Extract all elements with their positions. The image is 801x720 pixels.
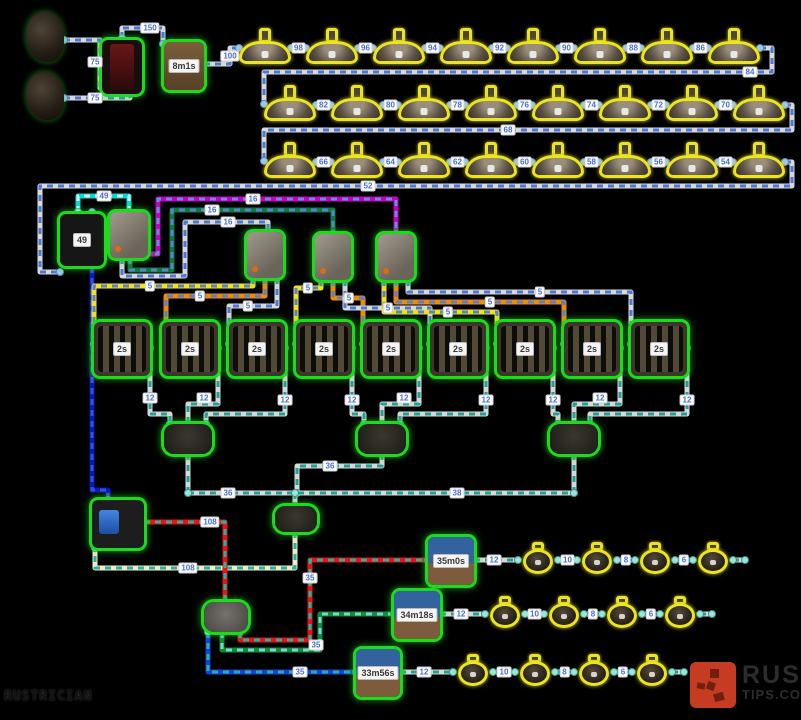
ceiling-light[interactable] (465, 85, 517, 121)
wire-dashes (297, 454, 382, 493)
wire-connector (292, 490, 299, 497)
rusttips-logo-text: RUST TIPS.COM (742, 662, 801, 701)
device-2s-7[interactable]: 2s (497, 322, 553, 376)
ceiling-light[interactable] (264, 85, 316, 121)
logo-subtitle: TIPS.COM (742, 688, 801, 701)
wire-connector (709, 611, 716, 618)
test-generator-1[interactable] (26, 12, 64, 62)
ceiling-light[interactable] (373, 28, 425, 64)
wire-connector (571, 490, 578, 497)
wire-generator-1-to-battery[interactable] (64, 40, 104, 88)
device-2s-2[interactable]: 2s (162, 322, 218, 376)
splitter-d[interactable] (378, 234, 414, 280)
light-dome (574, 41, 626, 64)
ceiling-light[interactable] (306, 28, 358, 64)
siren-light[interactable] (665, 596, 695, 628)
wire-connector (639, 611, 646, 618)
wire-connector (581, 611, 588, 618)
light-ball (579, 661, 609, 686)
light-ball (698, 549, 728, 574)
splitter-e[interactable] (204, 602, 248, 632)
component-label: 2s (113, 342, 131, 356)
ceiling-light[interactable] (574, 28, 626, 64)
light-dome (373, 41, 425, 64)
component-label: 35m0s (433, 554, 469, 568)
root-combiner-3[interactable] (550, 424, 598, 454)
wire-connector (185, 490, 192, 497)
light-dome (666, 155, 718, 178)
rusttips-logo-icon (690, 662, 736, 708)
smart-switch[interactable] (92, 500, 144, 548)
wire-connector (490, 669, 497, 676)
wire-connector (730, 557, 737, 564)
root-combiner-1[interactable] (164, 424, 212, 454)
wire-dashes (144, 522, 225, 602)
light-dome (708, 41, 760, 64)
light-dome (331, 155, 383, 178)
large-battery[interactable] (102, 40, 142, 94)
light-ball (637, 661, 667, 686)
light-dome (532, 155, 584, 178)
wire-connector (571, 669, 578, 676)
wire-connector (629, 669, 636, 676)
siren-light[interactable] (490, 596, 520, 628)
siren-light[interactable] (582, 542, 612, 574)
wire-connector (57, 269, 64, 276)
ceiling-light[interactable] (398, 85, 450, 121)
ceiling-light[interactable] (733, 85, 785, 121)
siren-light[interactable] (607, 596, 637, 628)
wire-battery-49-to-splitter-a[interactable] (78, 196, 129, 212)
wire-connector (690, 557, 697, 564)
ceiling-light[interactable] (507, 28, 559, 64)
light-ball (458, 661, 488, 686)
rusttips-logo: RUST TIPS.COM (690, 662, 801, 708)
timer-row-b[interactable]: 34m18s (394, 591, 440, 639)
light-ball (640, 549, 670, 574)
ceiling-light[interactable] (239, 28, 291, 64)
wire-connector (599, 611, 606, 618)
wire-connector (450, 669, 457, 676)
light-dome (398, 98, 450, 121)
wire-connector (574, 557, 581, 564)
ceiling-light[interactable] (331, 142, 383, 178)
ceiling-light[interactable] (666, 142, 718, 178)
ceiling-light[interactable] (708, 28, 760, 64)
device-2s-8[interactable]: 2s (564, 322, 620, 376)
wire-connector (657, 611, 664, 618)
wire-connector (541, 611, 548, 618)
wire-connector (512, 669, 519, 676)
siren-light[interactable] (520, 654, 550, 686)
component-label: 34m18s (396, 608, 437, 622)
device-2s-1[interactable]: 2s (94, 322, 150, 376)
siren-light[interactable] (523, 542, 553, 574)
wire-connector (515, 557, 522, 564)
logo-title: RUST (742, 662, 801, 688)
root-combiner-4[interactable] (275, 506, 317, 532)
light-dome (331, 98, 383, 121)
ceiling-light[interactable] (465, 142, 517, 178)
ceiling-light[interactable] (264, 142, 316, 178)
light-ball (523, 549, 553, 574)
wire-combiner-2-out[interactable] (297, 454, 382, 493)
light-dome (641, 41, 693, 64)
component-label: 2s (248, 342, 266, 356)
wire-connector (611, 669, 618, 676)
component-label: 2s (181, 342, 199, 356)
component-label: 8m1s (168, 59, 199, 73)
light-dome (440, 41, 492, 64)
wire-connector (669, 669, 676, 676)
light-ball (607, 603, 637, 628)
light-ball (520, 661, 550, 686)
light-ball (582, 549, 612, 574)
wire-connector (672, 557, 679, 564)
siren-light[interactable] (698, 542, 728, 574)
wire-connector (742, 557, 749, 564)
siren-light[interactable] (458, 654, 488, 686)
light-dome (733, 155, 785, 178)
splitter-c[interactable] (315, 234, 351, 280)
light-ball (549, 603, 579, 628)
device-2s-5[interactable]: 2s (363, 322, 419, 376)
ceiling-light[interactable] (532, 142, 584, 178)
component-label: 2s (382, 342, 400, 356)
device-2s-3[interactable]: 2s (229, 322, 285, 376)
wire-connector (552, 669, 559, 676)
ceiling-light[interactable] (641, 28, 693, 64)
light-ball (665, 603, 695, 628)
light-dome (733, 98, 785, 121)
rustrician-watermark: RUSTRICIAN (4, 689, 92, 704)
component-label: 2s (583, 342, 601, 356)
light-dome (666, 98, 718, 121)
ceiling-light[interactable] (733, 142, 785, 178)
light-dome (264, 98, 316, 121)
root-combiner-2[interactable] (358, 424, 406, 454)
ceiling-light[interactable] (440, 28, 492, 64)
device-2s-6[interactable]: 2s (430, 322, 486, 376)
light-dome (239, 41, 291, 64)
component-label: 2s (449, 342, 467, 356)
siren-light[interactable] (640, 542, 670, 574)
ceiling-light[interactable] (331, 85, 383, 121)
wire-connector (681, 669, 688, 676)
splitter-b[interactable] (247, 232, 283, 278)
wire-smart-switch-to-splitter-e[interactable] (144, 522, 225, 602)
light-dome (599, 98, 651, 121)
ceiling-light[interactable] (666, 85, 718, 121)
ceiling-light[interactable] (599, 142, 651, 178)
light-dome (465, 98, 517, 121)
wire-connector (482, 611, 489, 618)
splitter-a[interactable] (110, 212, 148, 258)
light-ball (490, 603, 520, 628)
light-dome (532, 98, 584, 121)
wire-timer-to-row-1[interactable] (204, 48, 239, 64)
timer-row-c[interactable]: 33m56s (356, 649, 400, 697)
timer-row-a[interactable]: 35m0s (428, 537, 474, 585)
light-dome (465, 155, 517, 178)
component-label: 2s (516, 342, 534, 356)
small-battery-49[interactable]: 49 (60, 214, 104, 266)
light-dome (306, 41, 358, 64)
component-label: 33m56s (357, 666, 398, 680)
ceiling-light[interactable] (398, 142, 450, 178)
wire-connector (632, 557, 639, 564)
wire-connector (697, 611, 704, 618)
siren-light[interactable] (579, 654, 609, 686)
test-generator-2[interactable] (26, 72, 64, 120)
wire-connector (555, 557, 562, 564)
siren-light[interactable] (549, 596, 579, 628)
light-dome (264, 155, 316, 178)
timer-main[interactable]: 8m1s (164, 42, 204, 90)
light-dome (398, 155, 450, 178)
component-label: 2s (650, 342, 668, 356)
component-label: 2s (315, 342, 333, 356)
wire-connector (614, 557, 621, 564)
light-dome (507, 41, 559, 64)
wire-connector (522, 611, 529, 618)
light-dome (599, 155, 651, 178)
device-2s-4[interactable]: 2s (296, 322, 352, 376)
siren-light[interactable] (637, 654, 667, 686)
component-label: 49 (73, 233, 91, 247)
ceiling-light[interactable] (599, 85, 651, 121)
ceiling-light[interactable] (532, 85, 584, 121)
circuit-canvas: 8m1s492s2s2s2s2s2s2s2s2s35m0s34m18s33m56… (0, 0, 801, 720)
device-2s-9[interactable]: 2s (631, 322, 687, 376)
